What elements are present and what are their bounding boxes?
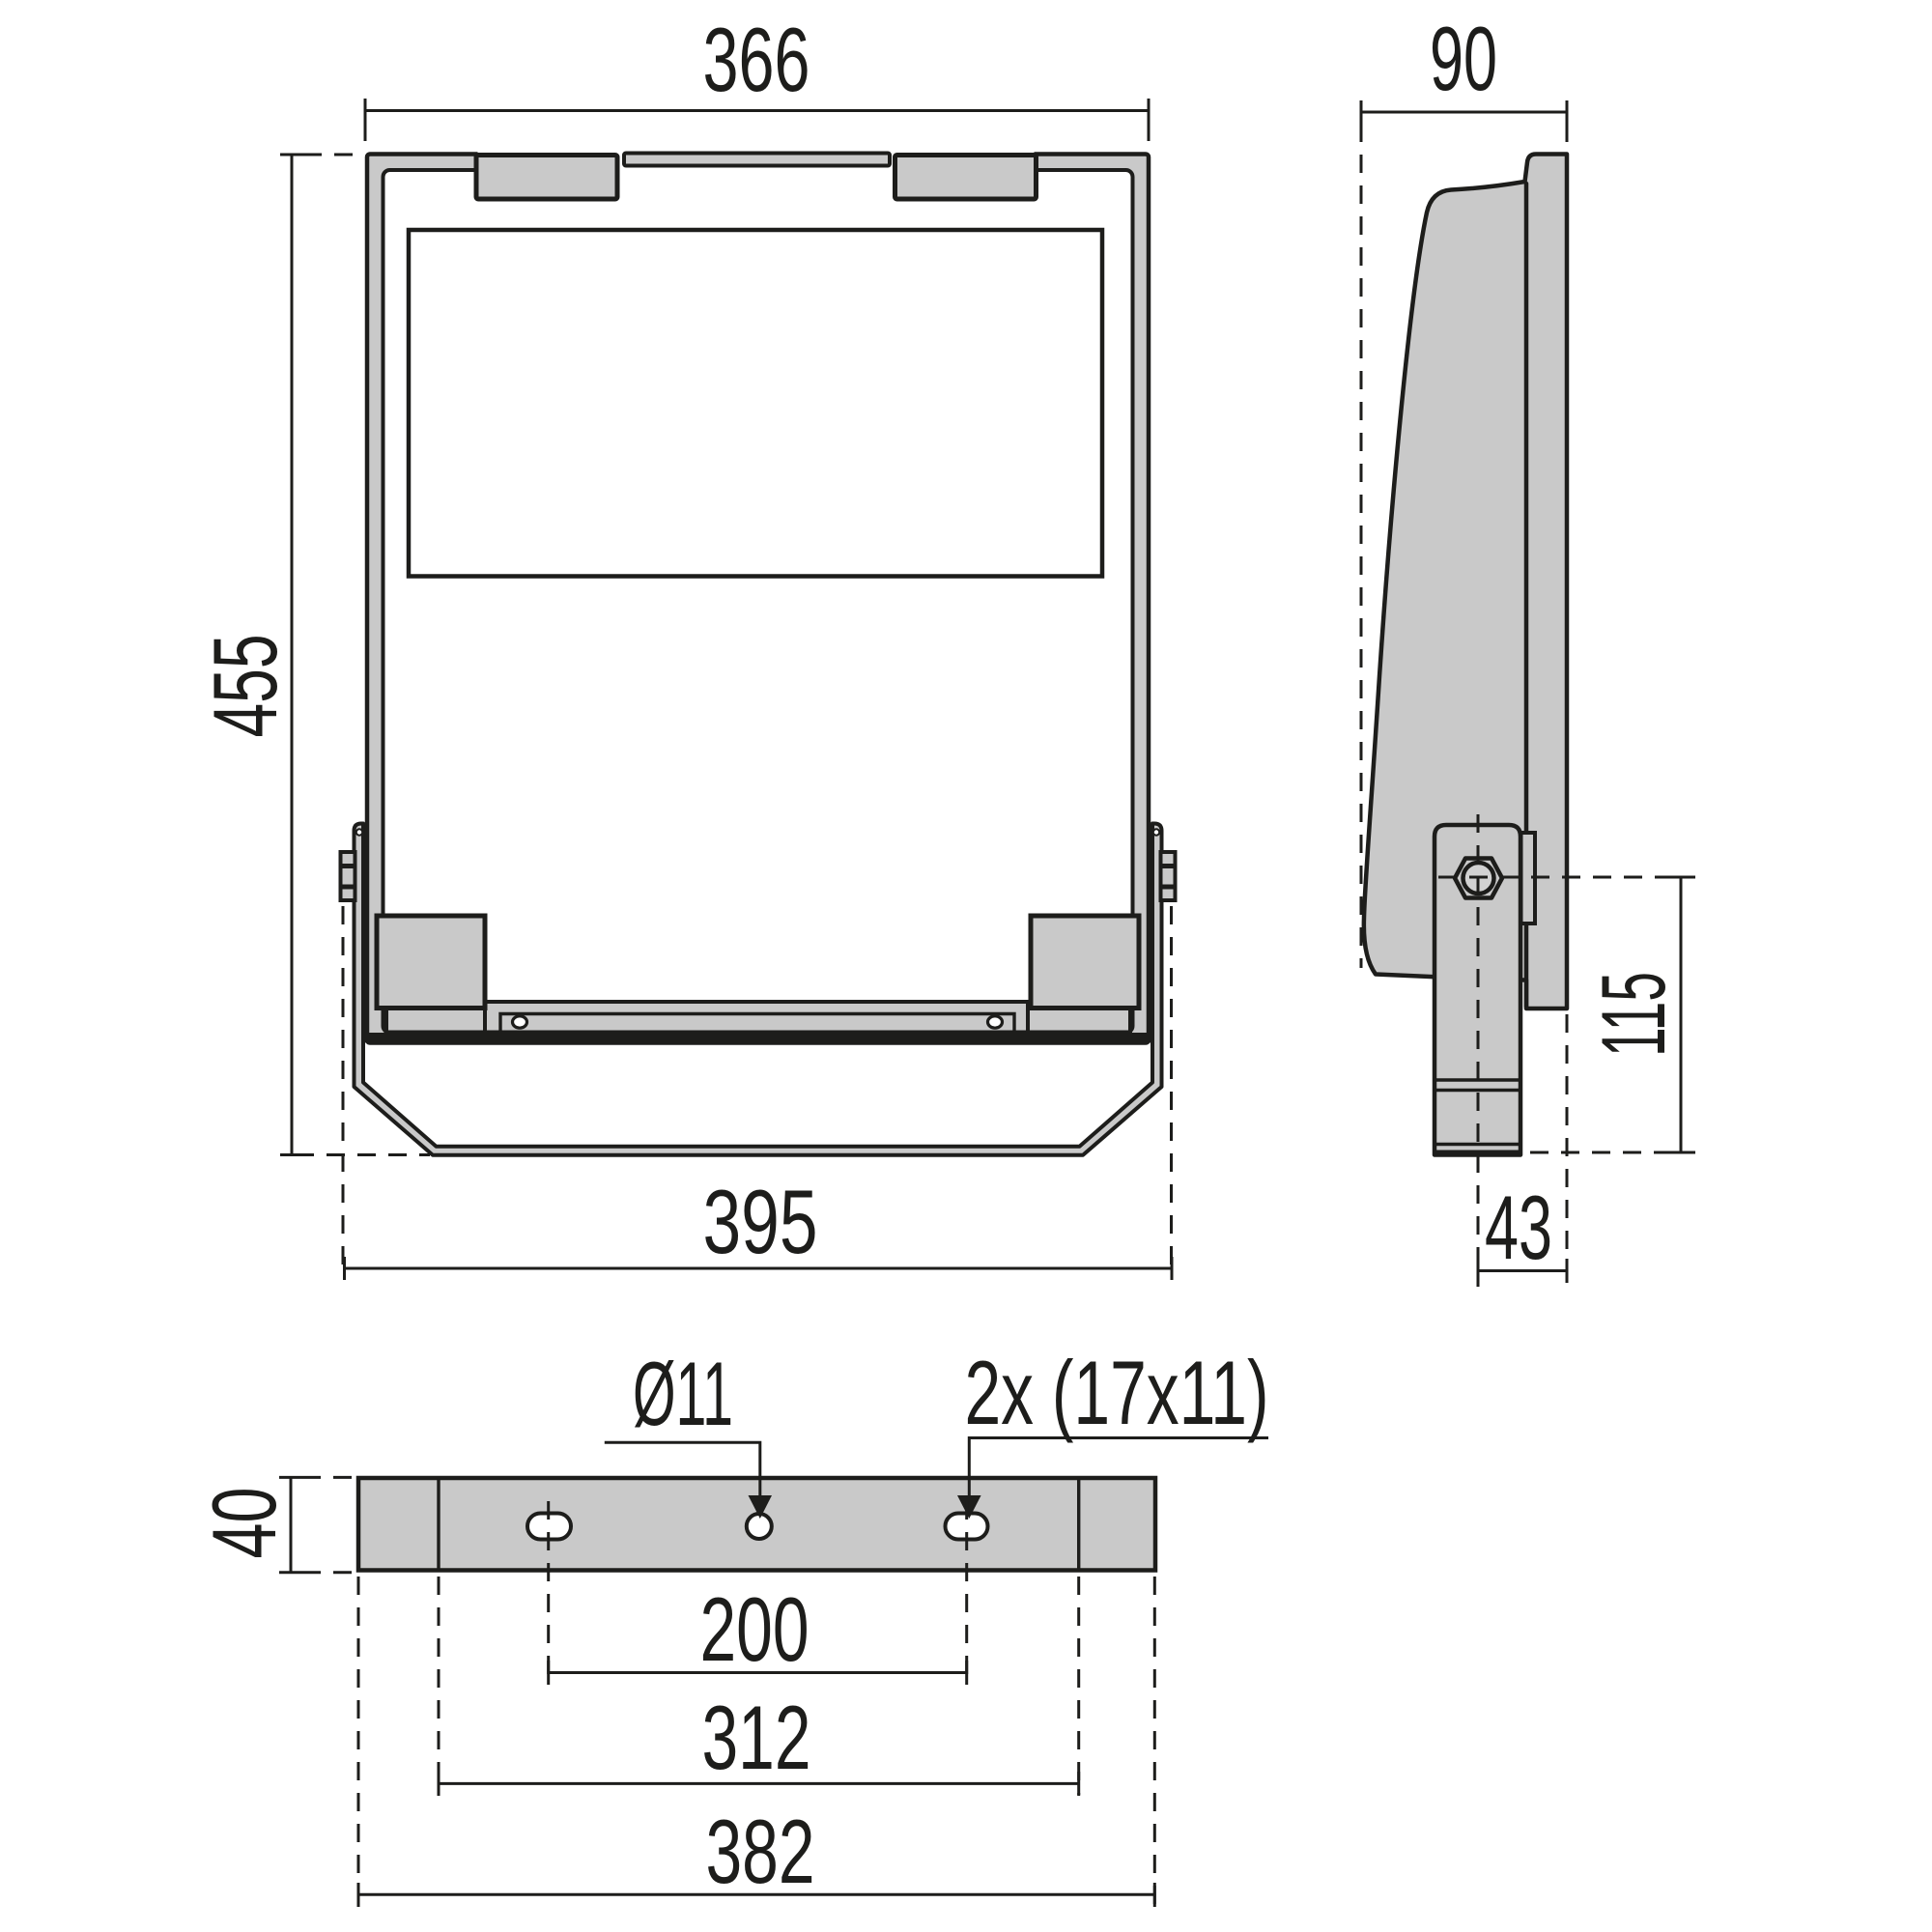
svg-text:312: 312 [702, 1687, 811, 1788]
svg-text:40: 40 [193, 1488, 295, 1559]
svg-text:395: 395 [703, 1171, 818, 1272]
svg-text:115: 115 [1582, 972, 1684, 1057]
svg-text:Ø11: Ø11 [633, 1343, 733, 1444]
svg-text:455: 455 [194, 635, 296, 738]
svg-text:2x (17x11): 2x (17x11) [965, 1342, 1269, 1443]
svg-text:382: 382 [706, 1801, 815, 1902]
svg-text:200: 200 [700, 1578, 810, 1680]
svg-text:90: 90 [1430, 8, 1497, 109]
svg-text:43: 43 [1485, 1177, 1552, 1278]
svg-text:366: 366 [703, 9, 810, 110]
